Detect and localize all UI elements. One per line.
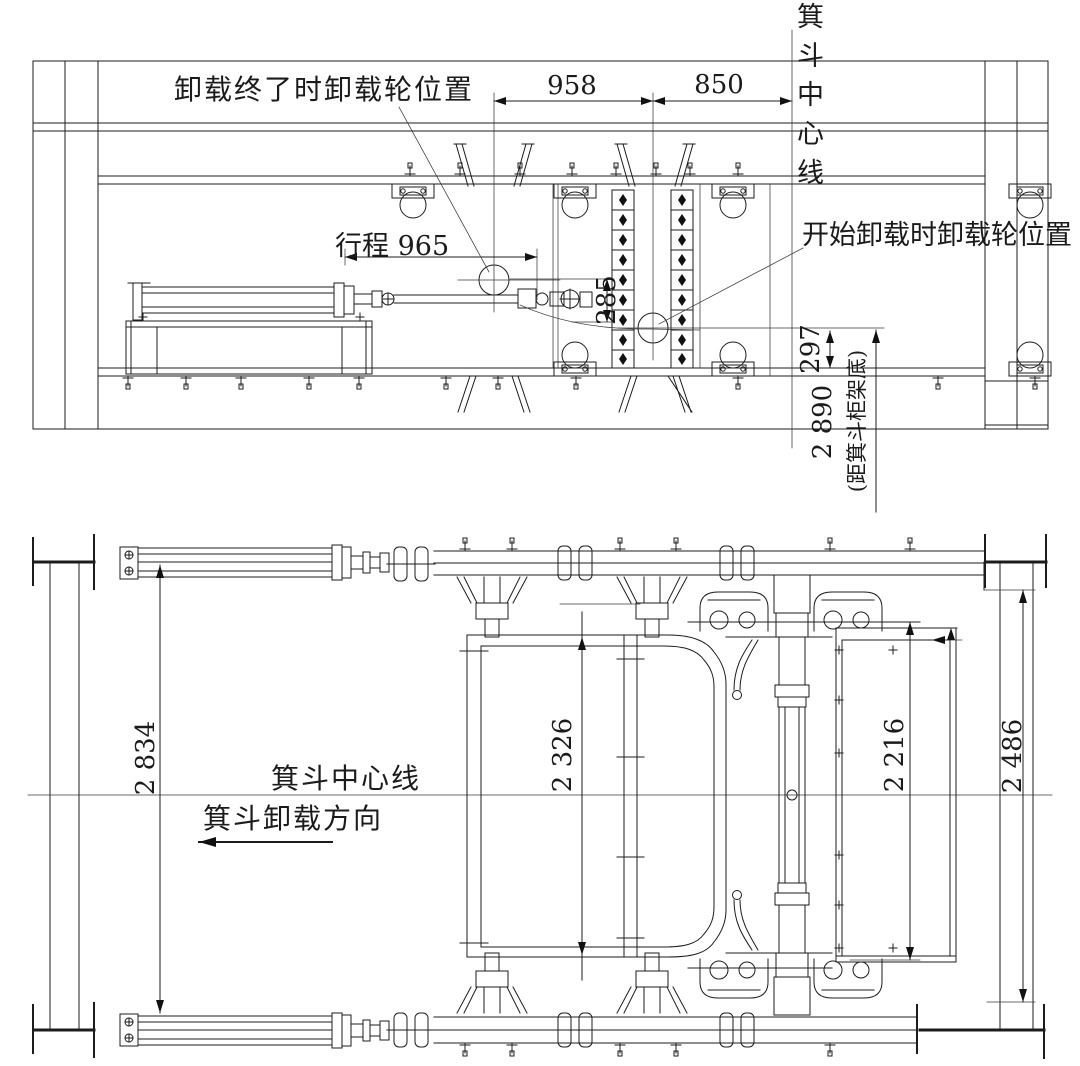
dim-2216: 2 216 [880,700,910,810]
start-unload-position-label: 开始卸载时卸载轮位置 [802,213,1072,252]
bottom-view-skip-body [460,635,726,957]
end-unload-position-label: 卸载终了时卸载轮位置 [174,68,474,108]
dim-2890-note: (距箕斗柜架底) [841,316,871,526]
top-view-rail-bolts [123,163,1040,389]
dim-850: 850 [688,70,750,100]
dim-2486: 2 486 [998,701,1028,811]
dim-285: 285 [592,245,622,355]
dim-2890: 2 890 [808,367,838,477]
drawing-linework [0,0,1080,1066]
dim-2326: 2 326 [548,700,578,810]
unload-direction-label: 箕斗卸载方向 [203,797,383,837]
dim-958: 958 [541,71,603,101]
skip-centerline-label-vertical: 箕斗中心线 [794,2,821,242]
dim-stroke-965: 行程 965 [335,224,449,263]
dim-2834: 2 834 [131,703,161,813]
top-view-bolt-diamonds [619,194,686,365]
bottom-view-top-cylinder-beam [120,538,985,581]
engineering-drawing-canvas: 卸载终了时卸载轮位置 958 850 箕斗中心线 开始卸载时卸载轮位置 行程 9… [0,0,1080,1066]
bottom-view-bottom-cylinder-beam [120,1013,917,1056]
skip-centerline-label: 箕斗中心线 [271,757,421,797]
